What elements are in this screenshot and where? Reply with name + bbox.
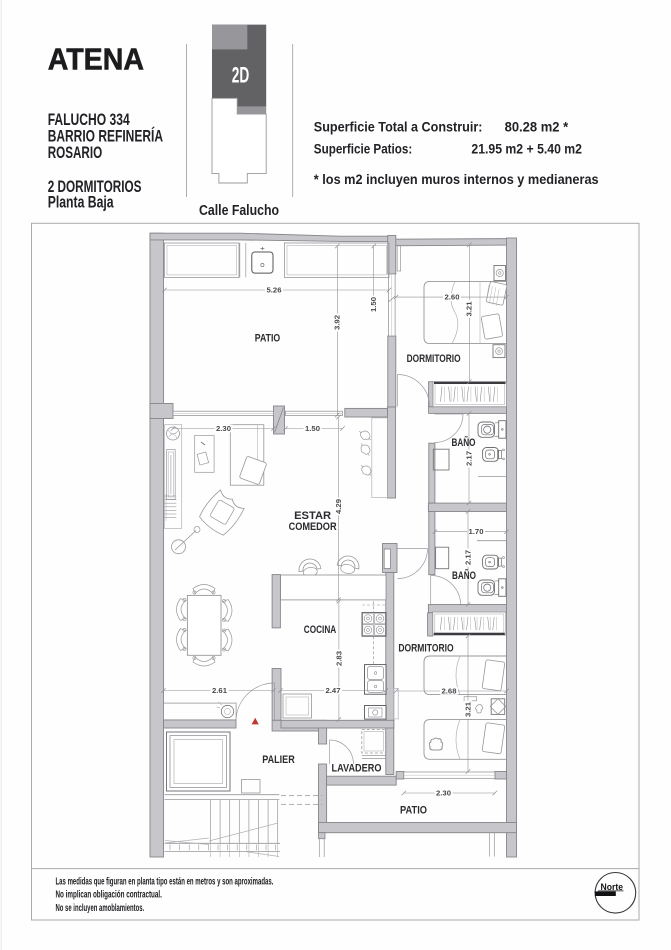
svg-text:5.26: 5.26 (267, 285, 282, 294)
svg-text:4.29: 4.29 (334, 499, 343, 514)
svg-text:2.30: 2.30 (216, 424, 231, 433)
svg-text:3.21: 3.21 (463, 702, 472, 717)
svg-text:2.60: 2.60 (445, 293, 460, 302)
svg-text:BAÑO: BAÑO (452, 569, 476, 582)
svg-text:BARRIO REFINERÍA: BARRIO REFINERÍA (48, 126, 163, 145)
svg-text:2.83: 2.83 (334, 651, 343, 666)
svg-text:PALIER: PALIER (262, 754, 295, 766)
svg-text:FALUCHO 334: FALUCHO 334 (48, 111, 131, 129)
svg-text:Calle Falucho: Calle Falucho (199, 203, 279, 219)
svg-text:No se incluyen amoblamientos.: No se incluyen amoblamientos. (56, 903, 145, 914)
svg-text:* los m2 incluyen muros intern: * los m2 incluyen muros internos y media… (314, 171, 599, 187)
svg-text:LAVADERO: LAVADERO (332, 763, 382, 775)
svg-text:Planta Baja: Planta Baja (48, 194, 114, 212)
svg-text:1.50: 1.50 (305, 424, 320, 433)
svg-text:1.50: 1.50 (369, 297, 378, 312)
svg-text:2.17: 2.17 (464, 451, 473, 466)
svg-text:Superficie Total a Construir:: Superficie Total a Construir: (314, 118, 483, 134)
svg-text:2.68: 2.68 (442, 686, 457, 695)
svg-text:DORMITORIO: DORMITORIO (407, 353, 461, 365)
svg-text:21.95 m2 + 5.40 m2: 21.95 m2 + 5.40 m2 (471, 140, 582, 156)
svg-text:ATENA: ATENA (48, 41, 144, 76)
svg-text:2.30: 2.30 (436, 788, 451, 797)
svg-text:3.92: 3.92 (333, 315, 342, 330)
svg-text:2.61: 2.61 (212, 686, 227, 695)
svg-text:COMEDOR: COMEDOR (289, 521, 337, 533)
svg-text:PATIO: PATIO (400, 804, 427, 816)
svg-text:Superficie Patios:: Superficie Patios: (314, 140, 413, 156)
svg-text:2.47: 2.47 (326, 686, 341, 695)
svg-text:No implican obligación contrac: No implican obligación contractual. (56, 890, 163, 901)
svg-text:BAÑO: BAÑO (452, 436, 476, 449)
svg-text:COCINA: COCINA (304, 624, 337, 636)
svg-text:ROSARIO: ROSARIO (48, 144, 103, 162)
svg-text:3.21: 3.21 (465, 302, 474, 317)
svg-text:2.17: 2.17 (463, 550, 472, 565)
svg-text:Las medidas que figuran en pla: Las medidas que figuran en planta tipo e… (56, 876, 274, 887)
svg-text:80.28 m2 *: 80.28 m2 * (505, 118, 569, 134)
svg-text:1.70: 1.70 (469, 527, 484, 536)
svg-text:2D: 2D (232, 63, 250, 88)
svg-text:DORMITORIO: DORMITORIO (398, 643, 454, 655)
svg-text:ESTAR: ESTAR (294, 510, 331, 522)
svg-text:PATIO: PATIO (255, 332, 281, 344)
